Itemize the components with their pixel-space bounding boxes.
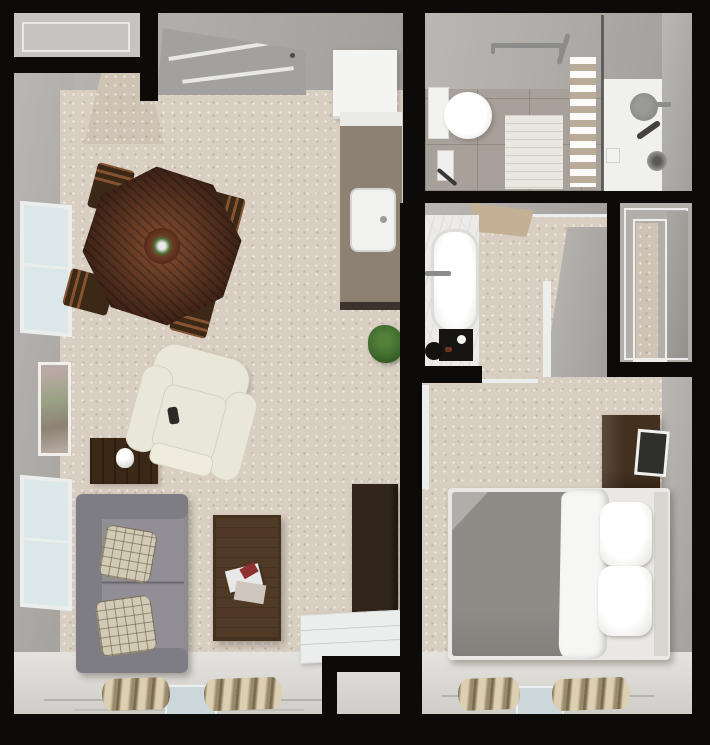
towel-bar-end	[491, 43, 495, 54]
shower-arm	[656, 102, 671, 107]
wall-outer-bottom	[0, 714, 710, 745]
shower-head	[630, 93, 658, 121]
sofa	[76, 494, 188, 673]
scale-dial	[457, 335, 466, 344]
wall-closet-bottom	[607, 362, 692, 377]
curtains	[101, 677, 170, 711]
scale-mark	[445, 347, 452, 352]
bed	[448, 488, 670, 660]
window	[20, 201, 72, 338]
wall-outer-left	[0, 0, 14, 745]
soap-dish	[606, 148, 620, 163]
bathtub	[431, 229, 479, 333]
wall-living-bedroom	[400, 203, 422, 728]
window	[20, 475, 72, 612]
refrigerator	[333, 50, 397, 119]
pillow	[598, 566, 652, 636]
tub-faucet	[425, 271, 451, 276]
curtains	[203, 677, 282, 712]
shower-valve	[647, 151, 667, 171]
media-cabinet	[352, 484, 398, 624]
door-trim	[422, 385, 429, 489]
wall-kitchen-bathroom	[403, 13, 425, 203]
door-trim	[543, 281, 551, 383]
entry-door-trim	[182, 66, 294, 84]
sofa-armrest	[76, 494, 188, 519]
wall-entry-closet-bottom	[14, 57, 158, 73]
towel-bar	[491, 43, 563, 48]
wall-art	[38, 362, 71, 456]
wall-closet-left	[607, 203, 620, 377]
closet	[620, 203, 692, 362]
floor-mat	[425, 342, 443, 360]
wall-tub-alcove-stub	[400, 366, 482, 383]
bedroom	[422, 377, 692, 714]
wall-bathroom-bottom	[403, 191, 692, 203]
bathtub-alcove	[425, 203, 607, 383]
sofa-back	[76, 498, 102, 668]
towel-shelf	[570, 57, 596, 187]
pillow	[600, 502, 652, 566]
curtains	[457, 677, 520, 711]
wall-outer-top	[0, 0, 710, 13]
sink-faucet	[380, 216, 387, 223]
counter-base-shadow	[340, 302, 402, 310]
throw-pillow	[94, 594, 157, 657]
toilet	[444, 92, 492, 139]
closet-wall-panel	[666, 211, 688, 358]
wall-niche-left	[322, 670, 337, 728]
potted-plant	[368, 325, 404, 363]
floorplan-rendering	[0, 0, 710, 745]
sliding-closet-doors	[633, 219, 667, 362]
kitchen-sink	[350, 188, 396, 252]
glass-shower-partition	[601, 15, 604, 191]
curtains	[551, 677, 630, 712]
wall-outer-right	[692, 0, 710, 745]
bathroom	[425, 13, 692, 191]
television	[634, 429, 670, 478]
bathroom-scale	[439, 329, 473, 361]
counter-top-edge	[340, 112, 402, 126]
door-handle	[290, 53, 295, 58]
headboard	[654, 492, 668, 656]
bath-mat	[505, 115, 563, 189]
throw-pillow	[98, 524, 158, 584]
coffee-table	[213, 515, 281, 641]
kitchen-counter	[340, 112, 402, 310]
living-dining-area	[14, 13, 403, 714]
wall-entry-closet-right	[140, 13, 158, 101]
entry-closet-shelf-trim	[22, 22, 130, 52]
duvet	[452, 492, 570, 656]
alcove-right-wall	[543, 227, 607, 383]
